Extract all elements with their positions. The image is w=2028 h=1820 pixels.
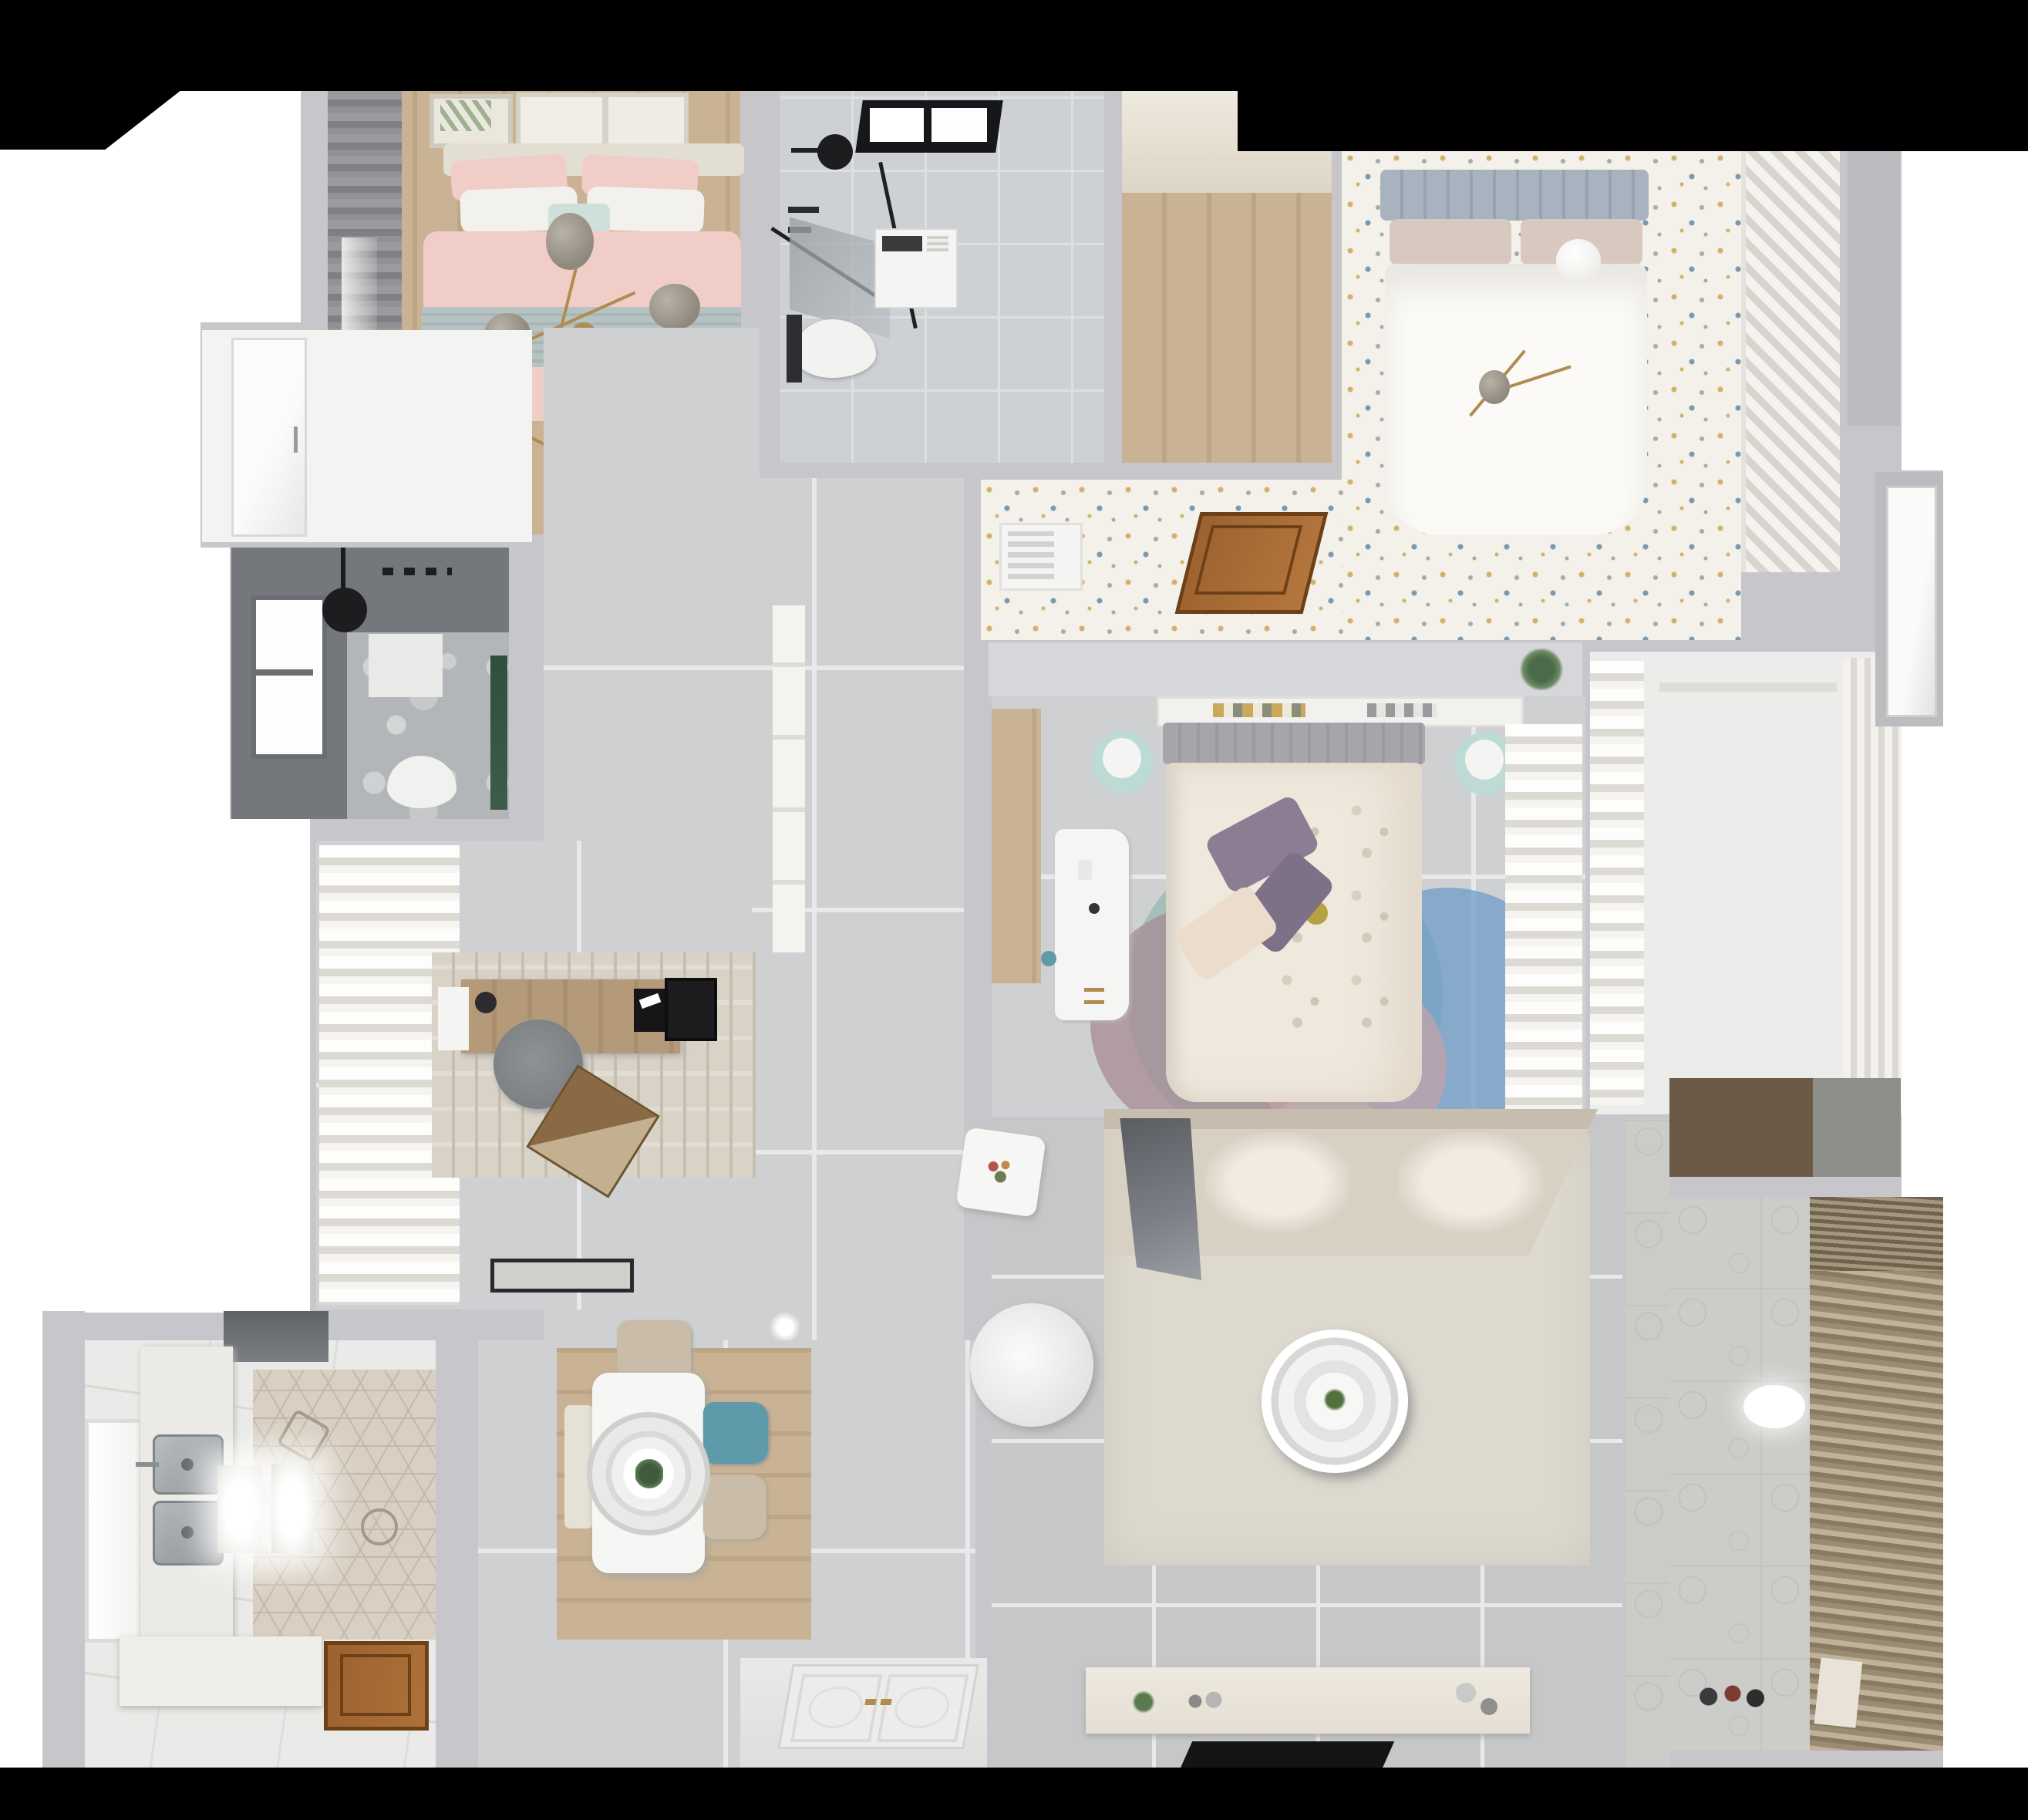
storage-niche — [1669, 1078, 1901, 1177]
balcony-light — [1743, 1385, 1805, 1428]
plant-side-table — [955, 1127, 1046, 1217]
desk-knob — [1089, 903, 1100, 914]
bed2-headboard — [1380, 170, 1649, 221]
kitchen — [85, 1340, 436, 1768]
hall-white-door — [231, 338, 307, 537]
washing-machine — [874, 228, 958, 308]
side-corridor-patterned — [1625, 1118, 1669, 1768]
balcony-toys — [1697, 1681, 1768, 1712]
bath2-window — [251, 595, 327, 759]
black-band-top-right — [1238, 0, 2028, 151]
hex-motif-1 — [276, 1408, 331, 1463]
sink-drain-2 — [181, 1526, 194, 1539]
bathroom-dark — [231, 548, 509, 819]
open-wood-door — [1175, 512, 1329, 614]
toilet-tank — [787, 315, 802, 383]
bath2-shower-disc — [322, 588, 367, 632]
bed3-desk — [1055, 829, 1129, 1020]
sink-drain-1 — [181, 1458, 194, 1471]
closet-wood-floor — [1122, 193, 1332, 463]
bed2-duvet — [1385, 264, 1647, 535]
desk-handle-1 — [1084, 988, 1104, 992]
wall-art-frame-1 — [516, 93, 607, 148]
chandelier-globe-1 — [546, 213, 594, 270]
corridor-upper — [544, 328, 760, 478]
study-doormat — [490, 1259, 634, 1293]
bed2-ball-lamp — [1556, 239, 1601, 282]
bed3-sheer-curtain — [1505, 724, 1582, 1110]
bath2-niche — [369, 634, 443, 697]
entry-handle-left — [864, 1699, 876, 1705]
skylight-pane-1 — [870, 108, 924, 142]
steel-sink-1 — [153, 1434, 224, 1495]
service-door-panel — [340, 1654, 411, 1716]
console-vase — [1456, 1683, 1476, 1703]
round-coffee-table — [1262, 1330, 1408, 1473]
bedroom-middle — [992, 696, 1585, 1117]
steel-sink-2 — [153, 1501, 224, 1566]
chandelier-globe-2 — [649, 284, 700, 330]
dining-pendant — [580, 1405, 717, 1542]
books-1 — [1213, 703, 1305, 717]
kitchen-outer-wall — [42, 1311, 89, 1768]
kitchen-lit-panel-2 — [271, 1464, 313, 1553]
console-decor — [1186, 1687, 1232, 1715]
floor-plan-render — [0, 0, 2028, 1820]
console-plant — [1132, 1690, 1155, 1714]
white-armchair — [970, 1303, 1093, 1427]
shelf-plant — [1519, 649, 1564, 690]
study-paper — [438, 987, 469, 1050]
washer-controls — [882, 236, 922, 251]
console-vase-2 — [1481, 1698, 1497, 1715]
door-panel-line — [1194, 525, 1302, 595]
hall-door-handle — [294, 426, 298, 453]
closet-rail-shadow — [1659, 682, 1837, 692]
corridor-lamp-glow — [770, 1311, 800, 1343]
air-vent-slats — [1008, 531, 1054, 579]
outside-left-3 — [85, 819, 310, 1313]
desk-pens — [1078, 860, 1092, 880]
louvered-blind — [1810, 1197, 1943, 1751]
coffee-table-plant — [1323, 1388, 1346, 1411]
study-desk-art — [665, 978, 717, 1041]
bed2-pillow-left — [1390, 219, 1511, 265]
bedroom-white — [1342, 148, 1741, 640]
entry-handle-right — [880, 1699, 891, 1705]
diagonal-slat-wardrobe — [1741, 148, 1840, 572]
sofa-seat-glow-2 — [1397, 1132, 1544, 1232]
desk-handle-2 — [1084, 1000, 1104, 1004]
bath2-window-bar — [256, 669, 313, 676]
bathroom-top — [780, 91, 1104, 463]
living-room — [992, 1118, 1622, 1768]
art-leaves — [440, 100, 491, 131]
study — [316, 841, 752, 1309]
shower-valves — [788, 207, 819, 213]
teal-bottle — [1041, 951, 1056, 966]
divider-shelf-wall — [989, 642, 1582, 696]
kitchen-dark-appliance — [224, 1311, 328, 1362]
shower-head — [817, 134, 853, 170]
kitchen-lit-panel-1 — [217, 1465, 262, 1553]
skylight-pane-2 — [931, 108, 987, 142]
outside-left-1 — [85, 322, 200, 548]
closet-sheer-curtain — [1590, 661, 1644, 1105]
air-vent — [999, 523, 1083, 591]
bed3-headboard — [1163, 723, 1425, 764]
tv-console — [1086, 1667, 1530, 1734]
paper-bag — [1814, 1657, 1863, 1727]
hex-motif-2 — [361, 1508, 398, 1545]
pendant-plant-center — [635, 1459, 663, 1488]
study-cup — [475, 992, 497, 1013]
sink-faucet — [136, 1462, 159, 1467]
sofa-seat-glow-1 — [1204, 1132, 1351, 1232]
right-side-door — [1886, 486, 1937, 717]
black-band-bottom — [0, 1768, 2028, 1820]
wall-art-frame-2 — [604, 93, 689, 148]
bedroom-white-hall — [981, 480, 1343, 640]
balcony — [1669, 1197, 1810, 1751]
washer-detail — [927, 236, 948, 251]
hall-upper — [202, 330, 532, 542]
dining-chair-top — [617, 1320, 691, 1377]
right-door-jut — [1875, 472, 1943, 726]
bath2-plant — [490, 656, 507, 810]
entry-double-door — [777, 1664, 979, 1749]
corridor-cabinet — [773, 605, 805, 952]
mint-stool-right-top — [1465, 740, 1504, 780]
monitor-screen-glint — [639, 993, 662, 1009]
bath2-fixtures — [382, 568, 452, 575]
louver-top-stack — [1810, 1197, 1943, 1271]
outside-right-2 — [1902, 726, 1943, 1197]
bed3-wood-strip — [992, 709, 1041, 983]
kitchen-window — [85, 1419, 143, 1643]
study-monitor — [634, 989, 668, 1032]
books-2 — [1367, 703, 1437, 717]
mint-stool-left-top — [1103, 738, 1141, 778]
kitchen-lower-counter — [120, 1636, 322, 1706]
walk-in-closet — [1590, 652, 1902, 1114]
mint-stool-left — [1092, 730, 1154, 794]
bed2-decor-knob — [1479, 370, 1510, 404]
kitchen-service-door — [324, 1641, 429, 1731]
outside-left-2 — [85, 548, 230, 819]
side-table-flowers — [981, 1153, 1019, 1188]
